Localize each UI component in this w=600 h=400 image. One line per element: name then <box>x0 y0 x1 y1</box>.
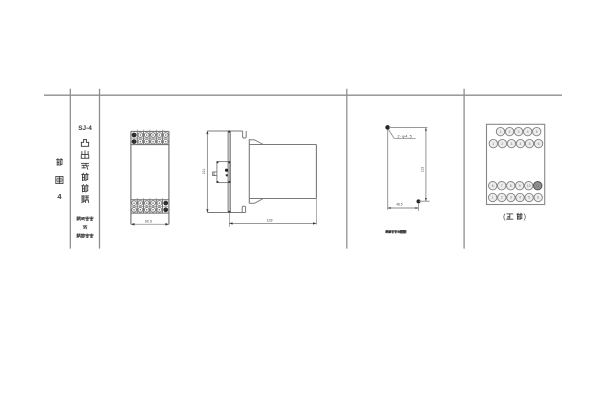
svg-text:1: 1 <box>500 130 502 134</box>
svg-text:8: 8 <box>510 184 512 188</box>
svg-text:4: 4 <box>519 196 521 200</box>
svg-text:3: 3 <box>510 142 512 146</box>
svg-text:6: 6 <box>537 196 539 200</box>
svg-text:6: 6 <box>538 142 540 146</box>
svg-text:121: 121 <box>202 169 206 175</box>
svg-text:9: 9 <box>519 184 521 188</box>
svg-text:35: 35 <box>212 172 216 175</box>
svg-text:5: 5 <box>529 142 531 146</box>
svg-text:113: 113 <box>420 167 424 173</box>
svg-text:10: 10 <box>527 184 531 188</box>
svg-text:SJ-4: SJ-4 <box>78 125 92 132</box>
svg-text:): ) <box>524 214 526 221</box>
svg-text:11: 11 <box>536 184 540 188</box>
svg-text:1: 1 <box>492 196 494 200</box>
svg-text:128: 128 <box>267 219 273 223</box>
svg-text:2: 2 <box>509 130 511 134</box>
svg-text:4: 4 <box>520 142 522 146</box>
svg-text:2: 2 <box>501 196 503 200</box>
svg-text:4: 4 <box>527 130 529 134</box>
svg-text:5: 5 <box>528 196 530 200</box>
svg-text:48.5: 48.5 <box>396 202 403 206</box>
svg-text:60.5: 60.5 <box>145 220 152 224</box>
svg-text:3: 3 <box>518 130 520 134</box>
svg-text:6: 6 <box>492 184 494 188</box>
svg-text:5: 5 <box>536 130 538 134</box>
svg-text:3: 3 <box>510 196 512 200</box>
svg-text:2: 2 <box>501 142 503 146</box>
svg-text:1: 1 <box>492 142 494 146</box>
svg-text:7: 7 <box>501 184 503 188</box>
svg-text:2-φ4.5: 2-φ4.5 <box>397 133 412 138</box>
